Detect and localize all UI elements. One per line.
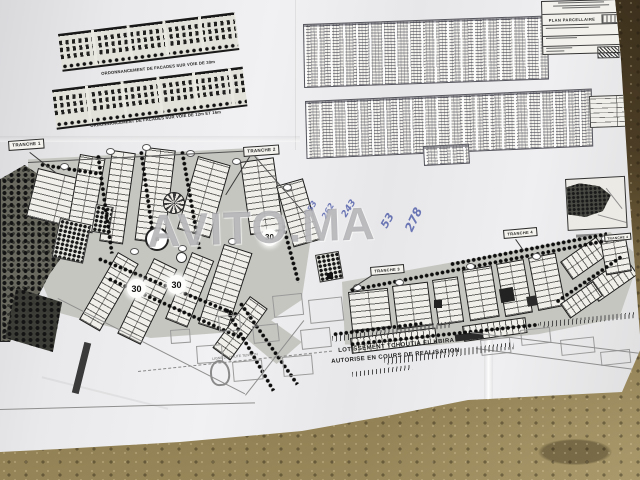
row-text-bar: [546, 47, 572, 49]
existing-block-outline: [272, 293, 304, 318]
existing-block-outline: [170, 329, 191, 344]
road-width-badge: 30: [127, 279, 146, 298]
existing-block-outline: [308, 296, 344, 323]
header-text-bar: [562, 7, 599, 9]
facility-block: [327, 273, 333, 279]
existing-block-outline: [520, 327, 552, 346]
block-number-oval: [60, 163, 69, 170]
block-number-oval: [466, 263, 475, 270]
block-number-oval: [130, 248, 139, 255]
existing-block-outline: [300, 327, 332, 350]
stamp-row-left: [543, 45, 595, 59]
block-number-oval: [532, 253, 541, 260]
existing-block-outline: [252, 323, 280, 344]
facility-block: [499, 287, 515, 303]
tranche-label-5: TRANCHE 4: [604, 233, 631, 242]
parcel-table-small: [423, 144, 470, 166]
block-number-oval: [106, 148, 115, 155]
situation-map-road: [598, 214, 628, 224]
existing-block-outline: [282, 354, 314, 377]
existing-road-line: [0, 402, 255, 410]
block-number-oval: [232, 158, 241, 165]
road-width-value: 30: [131, 284, 141, 294]
parcel-table-upper: [303, 15, 549, 88]
plan-title: PLAN PARCELLAIRE: [542, 16, 601, 23]
block-number-oval: [142, 144, 151, 151]
tranche-label-1: TRANCHE 1: [8, 138, 45, 150]
row-text-bar: [546, 26, 589, 28]
tranche-label-2: TRANCHE 2: [243, 144, 280, 156]
situation-map-urban-area: [566, 182, 612, 218]
row-text-bar: [546, 50, 564, 52]
fold-crease-vertical-top: [295, 0, 297, 150]
approval-stamp: [597, 46, 619, 59]
legend-table: [589, 95, 628, 128]
photo-scene: ORDONNANCEMENT DE FACADES SUR VOIE DE 30…: [0, 0, 640, 480]
title-block-row: [543, 26, 621, 37]
existing-block-outline: [218, 314, 241, 331]
title-block-title-row: PLAN PARCELLAIRE: [542, 13, 620, 26]
road-width-value: 30: [171, 280, 181, 290]
fold-crease-horizontal: [0, 136, 300, 142]
existing-parcel-hatch-row: [352, 365, 412, 377]
tranche-label-4: TRANCHE 4: [503, 227, 537, 239]
pen-annotation: 278: [402, 205, 425, 234]
title-block: PLAN PARCELLAIRE: [541, 0, 622, 55]
situation-map-inset: [565, 176, 628, 231]
block-number-oval: [395, 279, 404, 286]
row-text-bar: [546, 37, 577, 39]
facility-block: [526, 295, 538, 307]
title-block-stamp-row: [543, 45, 621, 60]
avito-watermark: AVITO.MA: [146, 196, 376, 258]
road-width-badge: 30: [167, 275, 186, 294]
pen-annotation: 53: [378, 211, 397, 231]
facility-block: [434, 300, 442, 308]
